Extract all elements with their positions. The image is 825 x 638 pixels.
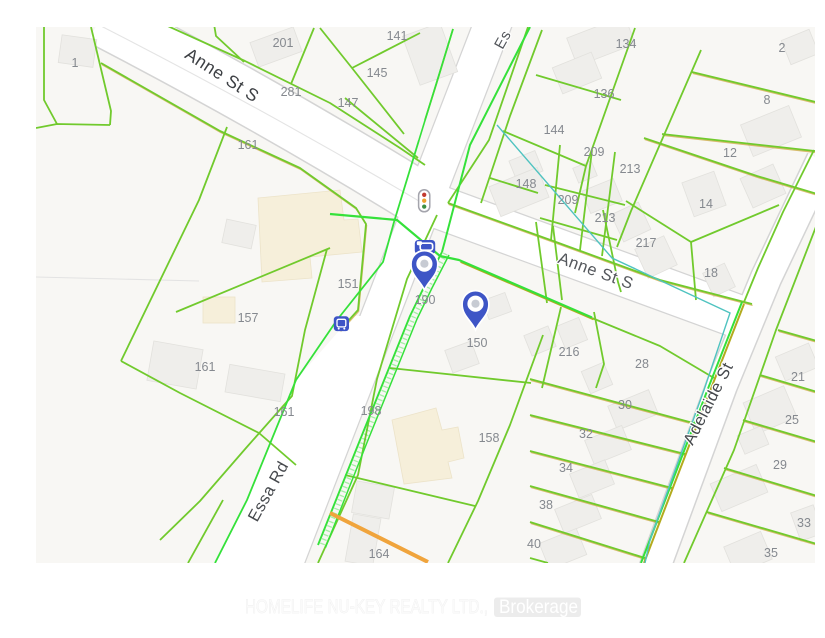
svg-text:14: 14 bbox=[699, 197, 713, 211]
svg-text:28: 28 bbox=[635, 357, 649, 371]
svg-text:190: 190 bbox=[415, 293, 436, 307]
svg-text:213: 213 bbox=[620, 162, 641, 176]
svg-text:161: 161 bbox=[274, 405, 295, 419]
svg-text:209: 209 bbox=[558, 193, 579, 207]
svg-text:40: 40 bbox=[527, 537, 541, 551]
svg-text:1: 1 bbox=[72, 56, 79, 70]
svg-text:217: 217 bbox=[636, 236, 657, 250]
svg-text:30: 30 bbox=[618, 398, 632, 412]
svg-text:144: 144 bbox=[544, 123, 565, 137]
svg-text:38: 38 bbox=[539, 498, 553, 512]
svg-text:164: 164 bbox=[369, 547, 390, 561]
svg-text:35: 35 bbox=[764, 546, 778, 560]
svg-text:151: 151 bbox=[338, 277, 359, 291]
svg-text:18: 18 bbox=[704, 266, 718, 280]
svg-text:134: 134 bbox=[616, 37, 637, 51]
svg-text:213: 213 bbox=[595, 211, 616, 225]
svg-text:161: 161 bbox=[195, 360, 216, 374]
svg-text:33: 33 bbox=[797, 516, 811, 530]
svg-text:141: 141 bbox=[387, 29, 408, 43]
svg-text:198: 198 bbox=[361, 404, 382, 418]
svg-text:2: 2 bbox=[779, 41, 786, 55]
svg-text:12: 12 bbox=[723, 146, 737, 160]
svg-text:32: 32 bbox=[579, 427, 593, 441]
svg-text:147: 147 bbox=[338, 96, 359, 110]
svg-text:136: 136 bbox=[594, 87, 615, 101]
svg-text:209: 209 bbox=[584, 145, 605, 159]
svg-text:281: 281 bbox=[281, 85, 302, 99]
svg-text:150: 150 bbox=[467, 336, 488, 350]
svg-text:29: 29 bbox=[773, 458, 787, 472]
svg-text:148: 148 bbox=[516, 177, 537, 191]
svg-text:161: 161 bbox=[238, 138, 259, 152]
svg-text:8: 8 bbox=[764, 93, 771, 107]
svg-text:201: 201 bbox=[273, 36, 294, 50]
svg-text:145: 145 bbox=[367, 66, 388, 80]
svg-text:158: 158 bbox=[479, 431, 500, 445]
svg-text:25: 25 bbox=[785, 413, 799, 427]
svg-text:21: 21 bbox=[791, 370, 805, 384]
svg-text:HOMELIFE NU-KEY REALTY LTD.,: HOMELIFE NU-KEY REALTY LTD., bbox=[245, 596, 488, 618]
svg-text:Brokerage: Brokerage bbox=[499, 596, 578, 618]
svg-text:157: 157 bbox=[238, 311, 259, 325]
svg-text:34: 34 bbox=[559, 461, 573, 475]
svg-text:216: 216 bbox=[559, 345, 580, 359]
